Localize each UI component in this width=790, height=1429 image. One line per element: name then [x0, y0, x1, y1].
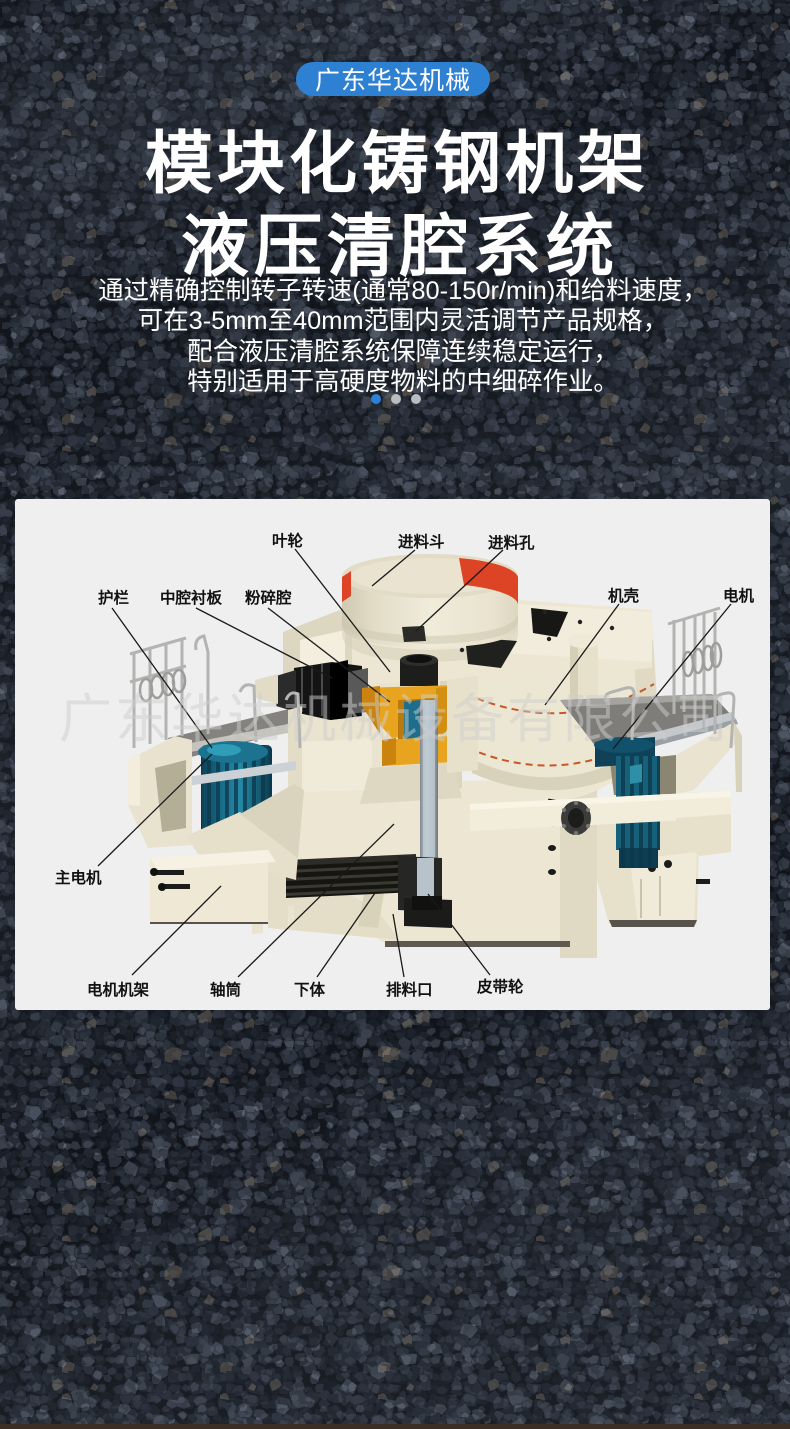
svg-text:下体: 下体 — [294, 980, 326, 999]
svg-text:广东华达机械设备有限公司: 广东华达机械设备有限公司 — [59, 690, 731, 749]
svg-text:排料口: 排料口 — [386, 980, 433, 999]
svg-text:进料斗: 进料斗 — [398, 532, 445, 551]
svg-text:粉碎腔: 粉碎腔 — [245, 588, 292, 607]
svg-text:护栏: 护栏 — [98, 588, 130, 607]
svg-text:进料孔: 进料孔 — [488, 533, 535, 552]
svg-text:电机: 电机 — [723, 586, 755, 605]
svg-text:叶轮: 叶轮 — [272, 531, 304, 550]
svg-text:机壳: 机壳 — [608, 586, 640, 605]
svg-text:中腔衬板: 中腔衬板 — [160, 588, 223, 607]
svg-text:皮带轮: 皮带轮 — [477, 977, 524, 996]
svg-text:轴筒: 轴筒 — [210, 980, 241, 999]
svg-text:主电机: 主电机 — [55, 868, 102, 887]
svg-text:电机机架: 电机机架 — [87, 980, 150, 999]
